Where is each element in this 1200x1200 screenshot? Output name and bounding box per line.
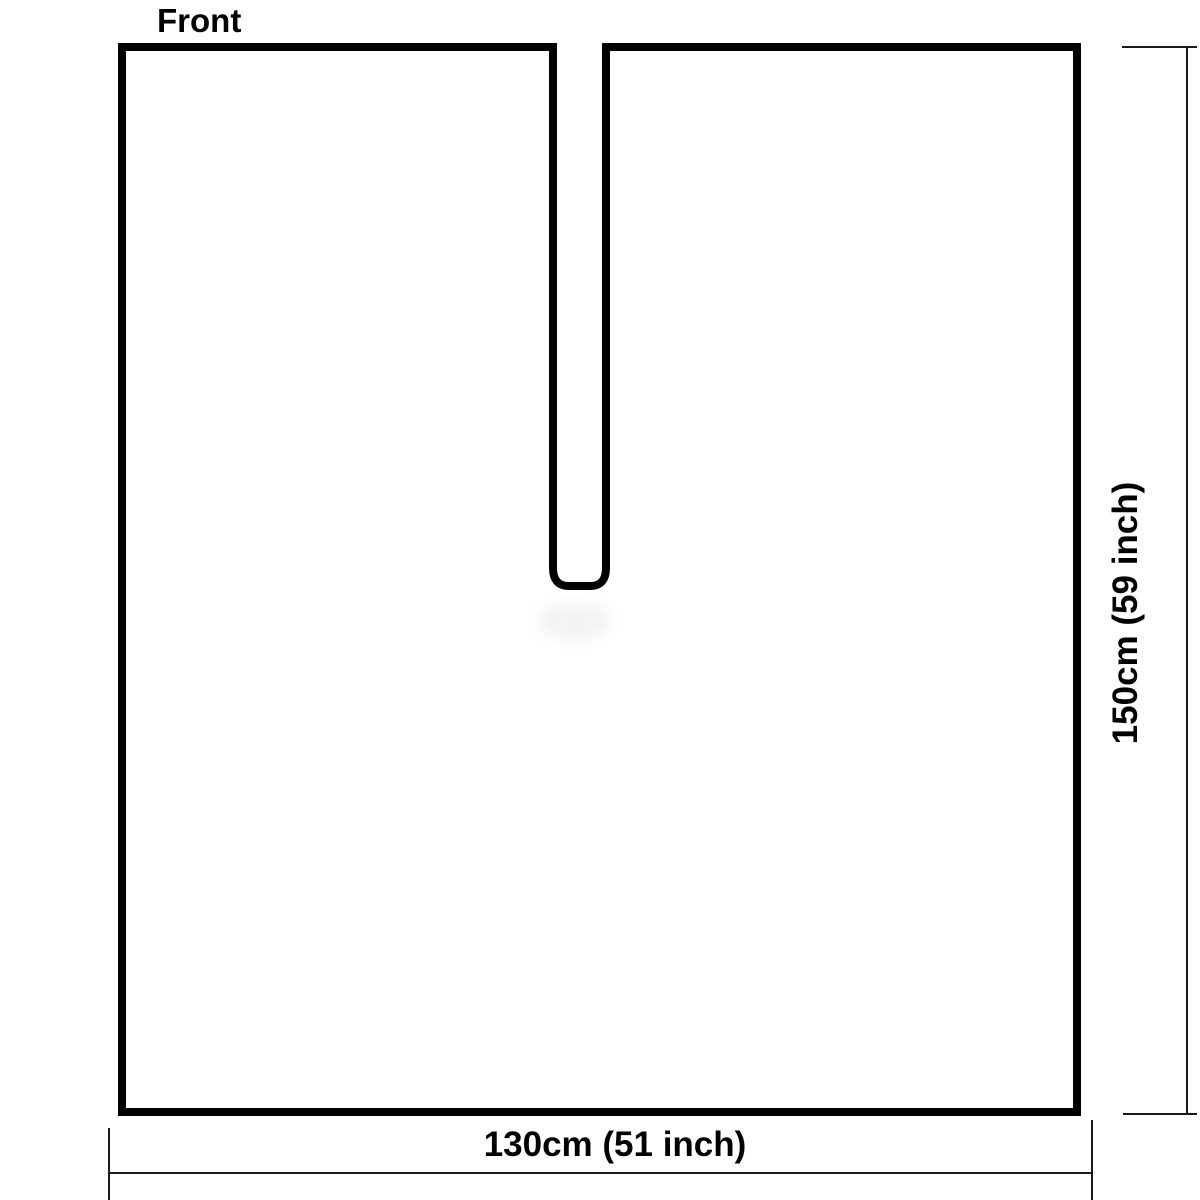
garment-panel-outline (122, 47, 1077, 1112)
watermark-smudge (538, 603, 610, 639)
diagram-canvas (0, 0, 1200, 1200)
bottom-dimension-label: 130cm (51 inch) (465, 1126, 765, 1164)
front-label: Front (157, 3, 241, 39)
right-dimension-label: 150cm (59 inch) (1104, 453, 1148, 773)
pattern-diagram: Front 130cm (51 inch) 150cm (59 inch) (0, 0, 1200, 1200)
